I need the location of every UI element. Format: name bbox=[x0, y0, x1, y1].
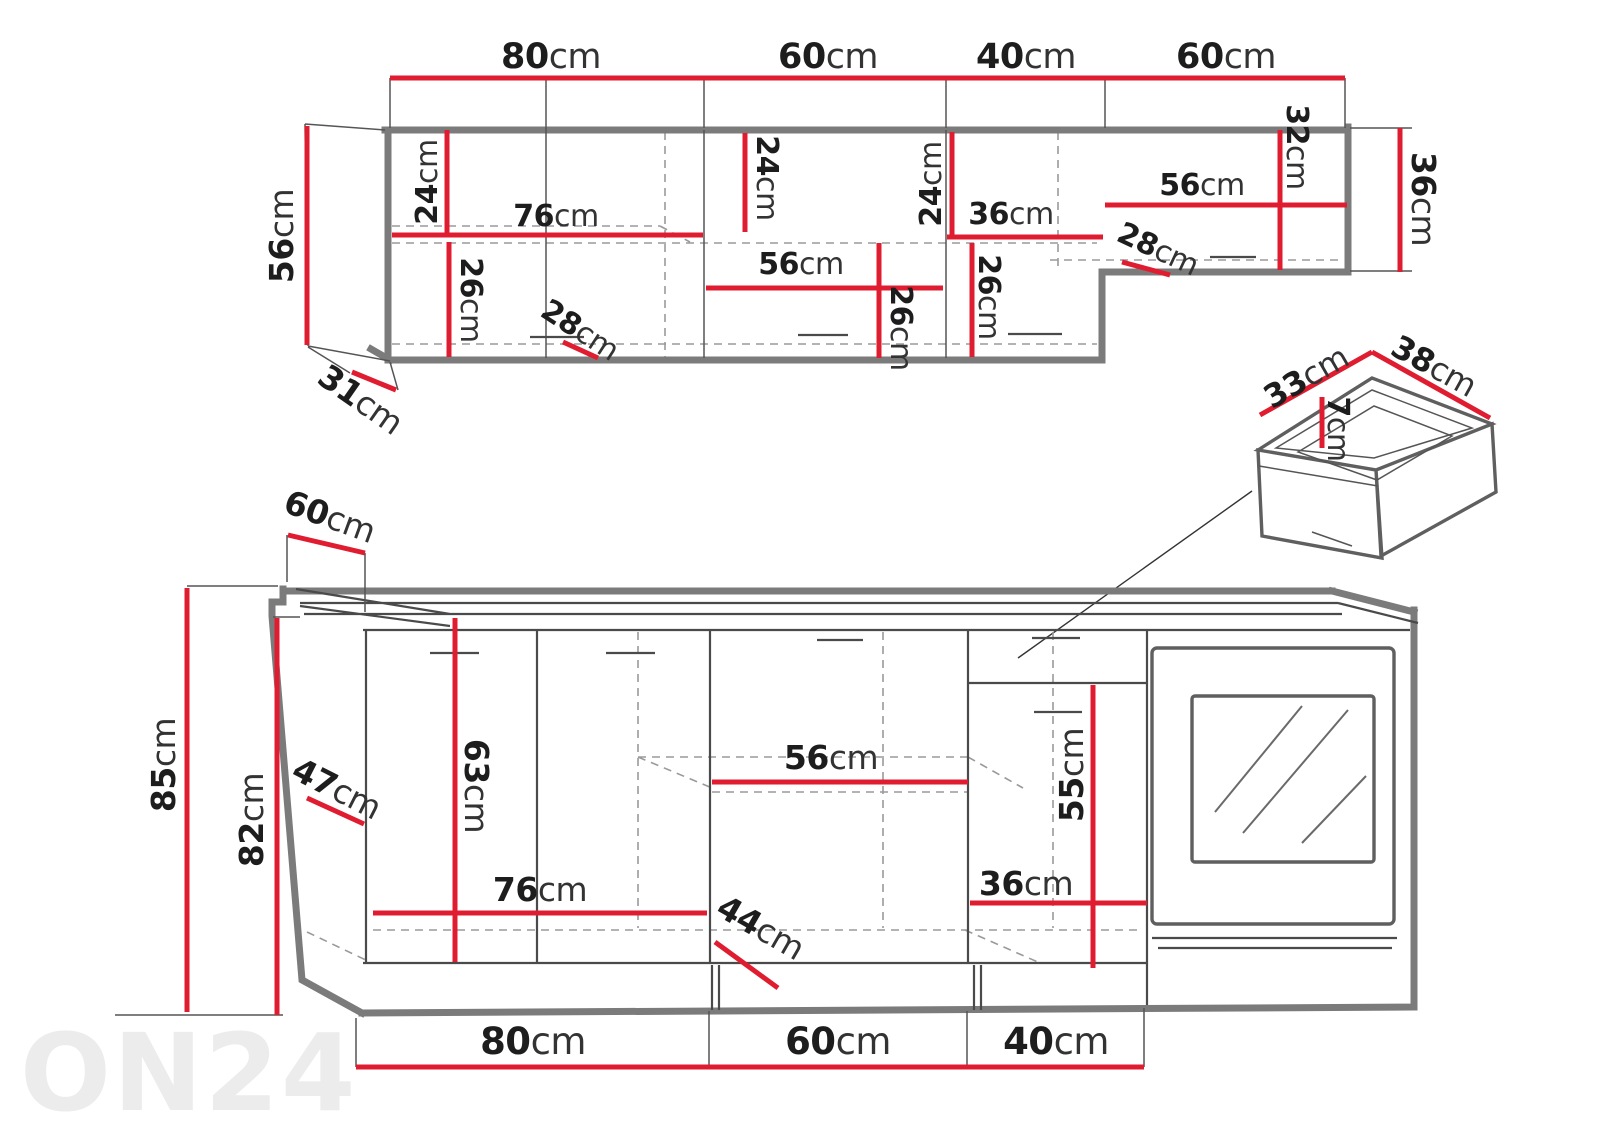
dim-upper-cab60-bottom-26: 26cm bbox=[884, 285, 919, 370]
dim-upper-right60-inner-32: 32cm bbox=[1280, 104, 1315, 189]
dim-upper-cab80-bottom-26: 26cm bbox=[454, 257, 489, 342]
dim-base-diag-44: 44cm bbox=[710, 887, 811, 968]
dim-drawer-depth-38: 38cm bbox=[1385, 327, 1483, 404]
dim-base-width-36: 36cm bbox=[979, 864, 1073, 903]
oven-glass-door bbox=[1192, 696, 1374, 862]
dim-upper-cab60-shelf-56: 56cm bbox=[758, 247, 843, 282]
dim-upper-cab40-width-36: 36cm bbox=[968, 197, 1053, 232]
upper-dimension-lines bbox=[307, 78, 1400, 390]
dim-upper-height-56: 56cm bbox=[262, 189, 301, 283]
dim-base-height-55: 55cm bbox=[1052, 728, 1091, 822]
dim-base-total-height-85: 85cm bbox=[144, 718, 183, 812]
oven-glass-shine bbox=[1215, 706, 1366, 843]
kitchen-dimension-diagram-page: 80cm 60cm 40cm 60cm 56cm 31cm 24cm 76cm … bbox=[0, 0, 1600, 1145]
dim-upper-cab60-top-24: 24cm bbox=[750, 135, 785, 220]
dim-upper-side-depth-31: 31cm bbox=[311, 356, 411, 442]
oven bbox=[1152, 648, 1397, 948]
dim-base-door-height-63: 63cm bbox=[458, 739, 497, 833]
dim-upper-right60-shelf-56: 56cm bbox=[1159, 168, 1244, 203]
kitchen-dimensions-diagram: 80cm 60cm 40cm 60cm 56cm 31cm 24cm 76cm … bbox=[0, 0, 1600, 1145]
dim-upper-cab80-top-24: 24cm bbox=[410, 139, 445, 224]
dim-upper-total-width-1: 80cm bbox=[501, 37, 601, 77]
base-cabinets-elevation: 60cm 85cm 82cm 47cm 63cm 76cm 44cm 56cm … bbox=[115, 482, 1418, 1067]
oven-lower-band bbox=[1152, 938, 1397, 948]
dim-upper-total-width-2: 60cm bbox=[778, 37, 878, 77]
dim-base-shelf-76: 76cm bbox=[493, 870, 587, 909]
drawer-detail: 33cm 38cm 7cm bbox=[1018, 327, 1496, 658]
dim-base-counter-depth-60: 60cm bbox=[279, 482, 381, 551]
dim-drawer-height-7: 7cm bbox=[1321, 396, 1356, 461]
dim-base-carcass-height-82: 82cm bbox=[232, 773, 271, 867]
dim-base-door-diag-47: 47cm bbox=[286, 749, 388, 827]
dim-base-width-40: 40cm bbox=[1003, 1020, 1109, 1063]
dim-upper-right-height-36: 36cm bbox=[1405, 152, 1444, 246]
dim-upper-cab40-bottom-26: 26cm bbox=[972, 254, 1007, 339]
dim-base-shelf-56: 56cm bbox=[784, 738, 878, 777]
dim-upper-cab80-shelf-76: 76cm bbox=[513, 199, 598, 234]
dim-upper-total-width-3: 40cm bbox=[976, 37, 1076, 77]
watermark-logo: ON24 bbox=[20, 1012, 357, 1136]
dim-base-width-80: 80cm bbox=[480, 1020, 586, 1063]
upper-dashed-lines bbox=[392, 132, 1340, 358]
dim-base-width-60: 60cm bbox=[785, 1020, 891, 1063]
dim-upper-cab40-top-24: 24cm bbox=[914, 141, 949, 226]
dim-upper-total-width-4: 60cm bbox=[1176, 37, 1276, 77]
